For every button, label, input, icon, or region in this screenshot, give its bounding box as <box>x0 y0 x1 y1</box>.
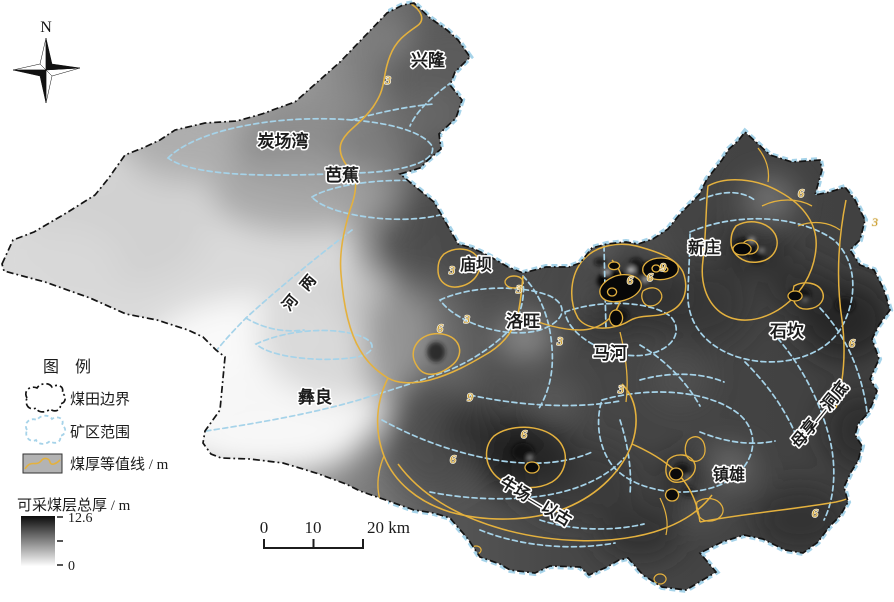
svg-text:马河: 马河 <box>593 344 627 363</box>
svg-text:3: 3 <box>448 263 455 277</box>
svg-text:芭蕉: 芭蕉 <box>325 165 359 185</box>
svg-text:6: 6 <box>798 186 804 200</box>
svg-text:3: 3 <box>384 73 391 87</box>
svg-text:镇雄: 镇雄 <box>713 465 745 484</box>
svg-text:6: 6 <box>521 427 527 441</box>
svg-text:0: 0 <box>68 559 75 574</box>
svg-text:6: 6 <box>647 270 653 284</box>
svg-text:6: 6 <box>627 273 633 287</box>
svg-text:N: N <box>40 19 52 36</box>
svg-text:3: 3 <box>515 282 522 296</box>
svg-text:炭场湾: 炭场湾 <box>258 131 309 151</box>
svg-text:9: 9 <box>467 390 473 404</box>
svg-text:9: 9 <box>660 260 666 274</box>
svg-text:庙坝: 庙坝 <box>460 255 492 274</box>
svg-text:3: 3 <box>871 215 878 229</box>
svg-text:彝良: 彝良 <box>298 387 332 407</box>
svg-text:6: 6 <box>450 452 456 466</box>
svg-text:0: 0 <box>260 518 269 537</box>
svg-text:洛旺: 洛旺 <box>506 311 540 331</box>
svg-text:新庄: 新庄 <box>688 238 720 257</box>
svg-text:煤田边界: 煤田边界 <box>70 391 130 408</box>
svg-text:煤厚等值线 / m: 煤厚等值线 / m <box>70 455 169 473</box>
svg-text:矿区范围: 矿区范围 <box>70 424 130 441</box>
svg-text:6: 6 <box>437 321 443 335</box>
svg-text:图 例: 图 例 <box>43 358 91 376</box>
svg-text:12.6: 12.6 <box>68 511 93 526</box>
svg-text:兴隆: 兴隆 <box>411 50 446 70</box>
svg-text:3: 3 <box>617 382 624 396</box>
svg-text:6: 6 <box>812 506 818 520</box>
svg-text:石坎: 石坎 <box>769 321 804 341</box>
svg-text:20 km: 20 km <box>367 518 410 537</box>
svg-text:10: 10 <box>305 518 322 537</box>
svg-text:3: 3 <box>556 334 563 348</box>
svg-text:6: 6 <box>849 336 855 350</box>
svg-text:3: 3 <box>463 312 470 326</box>
